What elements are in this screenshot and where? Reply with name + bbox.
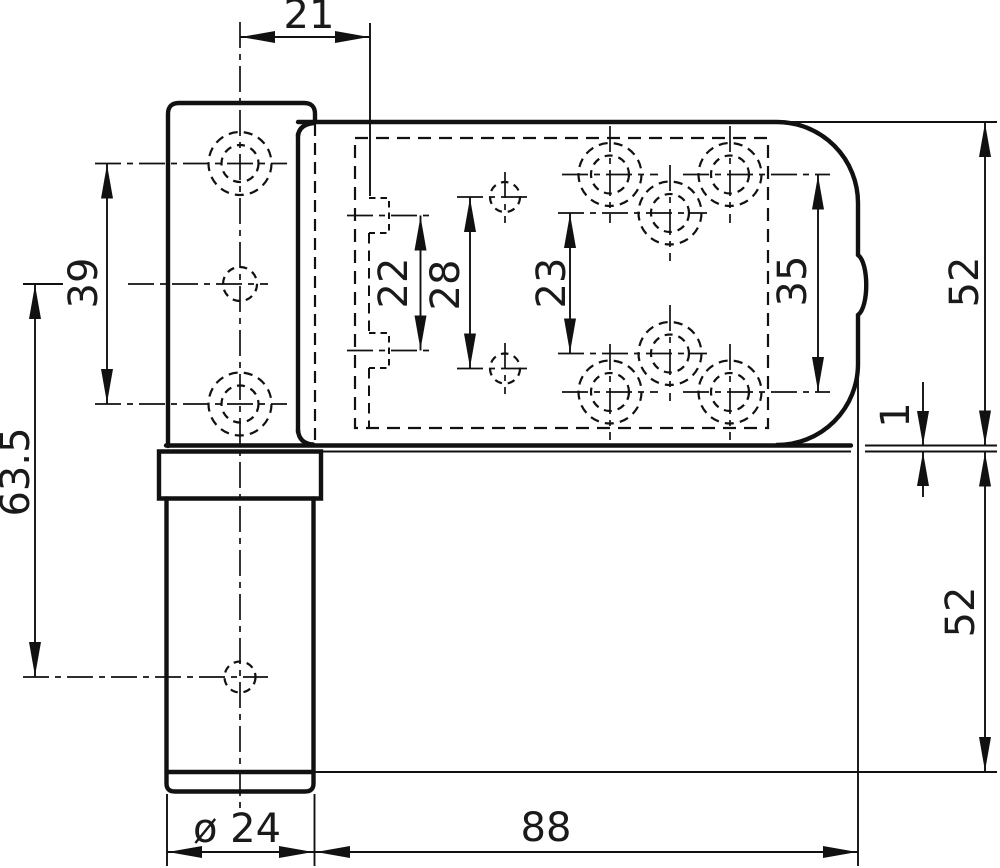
junction-fillet-top [298,123,314,136]
screw-hole-mt-cross [558,165,707,261]
hidden-geometry [209,124,769,693]
dim-35: 35 [770,175,824,393]
dim-label-63-5: 63.5 [0,427,39,516]
dim-39: 39 [61,164,113,405]
dim-label-1: 1 [873,402,919,427]
hinge-outline [159,103,866,792]
dim-label-52-bottom: 52 [938,587,984,638]
dim-28: 28 [423,197,476,369]
dim-label-22: 22 [371,258,417,309]
junction-fillet-bottom [298,430,313,445]
dim-23: 23 [529,213,576,354]
screw-hole-br-cross [683,344,830,440]
screw-hole-bl-cross [562,344,658,440]
dim-label-28: 28 [423,260,469,311]
flag-leaf-cap-and-left-edge [168,103,315,446]
screw-hole-mb-cross [558,305,707,401]
hinge-technical-drawing-page: 21 39 63.5 22 28 [0,0,1000,868]
dim-label-dia-24: ø 24 [193,806,281,852]
centerlines [23,22,830,808]
hinge-technical-drawing: 21 39 63.5 22 28 [0,0,1000,868]
dim-22: 22 [371,216,427,351]
dim-label-23: 23 [529,258,575,309]
dim-label-88: 88 [521,805,572,851]
dim-63-5: 63.5 [0,284,41,677]
dim-dia-24: ø 24 [167,806,315,858]
dim-label-52-top: 52 [942,257,988,308]
dim-1: 1 [873,382,929,497]
dim-label-35: 35 [770,256,816,307]
dim-21: 21 [240,0,370,43]
dim-52-bottom: 52 [938,452,991,773]
screw-hole-tl-cross [562,126,658,223]
dim-88: 88 [315,805,859,858]
screw-hole-tr-cross [683,126,830,223]
dim-label-21: 21 [284,0,335,38]
dim-52-top: 52 [942,122,991,446]
dim-label-39: 39 [61,258,107,309]
